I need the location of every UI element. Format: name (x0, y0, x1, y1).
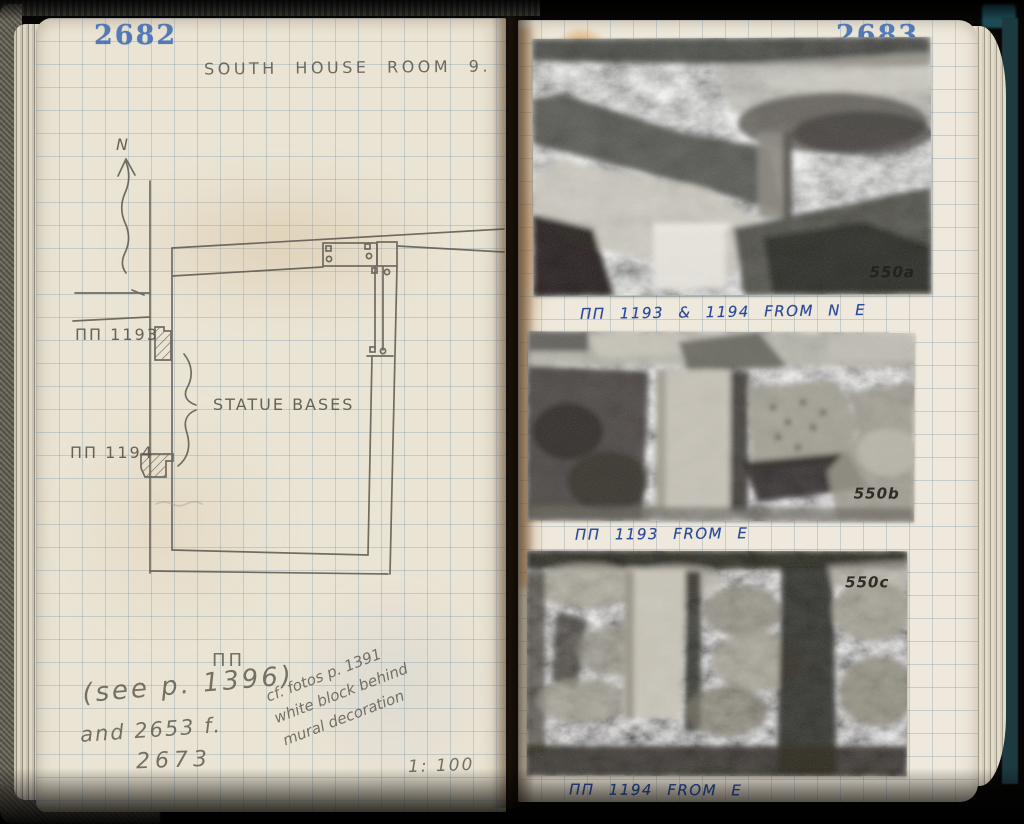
bottom-vignette (0, 768, 1024, 824)
left-page: 2682 SOUTH HOUSE ROOM 9. (36, 18, 506, 812)
statue-bases-label: STATUE BASES (213, 395, 354, 414)
plan-west-line (73, 317, 150, 321)
photo-550a-image (532, 37, 931, 296)
north-arrow-icon (118, 159, 135, 273)
notebook-photograph: 2682 SOUTH HOUSE ROOM 9. (0, 0, 1024, 824)
plan-north-wall-outer (172, 229, 504, 248)
plan-south-wall-inner (172, 356, 372, 555)
photo-caption-550b: ΠΠ 1193 FROM E (575, 524, 748, 544)
plan-south-wall-outer (150, 571, 388, 574)
brace-curve-bottom (178, 410, 196, 466)
photo-number-550c: 550c (845, 573, 889, 591)
photo-550b-base-1193-from-e: 550b (528, 331, 915, 521)
photo-number-550a: 550a (870, 263, 916, 281)
plan-north-wall-inner (172, 267, 323, 276)
plan-doorway (323, 242, 397, 266)
page-gutter-shadow (492, 16, 534, 808)
base-1194-label: ΠΠ 1194 (70, 443, 154, 462)
photo-550a-excavation-from-ne: 550a (532, 37, 931, 296)
base-1193-label: ΠΠ 1193 (75, 325, 159, 344)
top-vignette (0, 0, 1024, 20)
north-label: N (116, 135, 130, 154)
plan-north-wall-right (397, 246, 504, 252)
photo-550c-base-1194-from-e: 550c (527, 551, 907, 777)
right-page: 2683 (518, 20, 978, 802)
faded-scribble (156, 502, 202, 506)
brace-curve-top (184, 354, 196, 405)
photo-number-550b: 550b (854, 484, 900, 502)
